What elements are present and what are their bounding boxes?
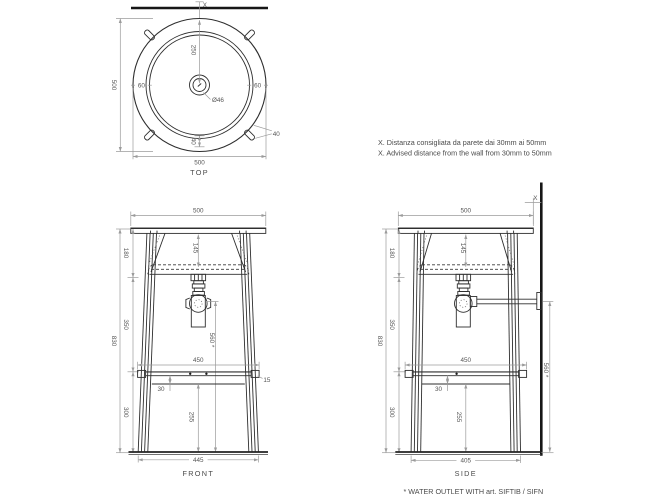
- front-seg-300-dim: 300: [122, 407, 129, 418]
- front-seg-180-dim: 180: [122, 248, 129, 259]
- pipe-nut: [470, 297, 477, 307]
- side-base-width-dim: 405: [461, 458, 472, 465]
- drain-center-tick: [198, 84, 201, 87]
- trap-ball-joint: [190, 295, 208, 313]
- top-center-offset-dim: 250: [190, 45, 197, 56]
- front-base-width-dim: 445: [193, 457, 204, 464]
- front-view: 500 145: [110, 207, 271, 478]
- front-total-height-dim: 830: [110, 336, 117, 347]
- top-width-dim: 500: [194, 159, 205, 166]
- side-view: 500 X 145: [376, 183, 554, 479]
- side-seg-350-dim: 350: [388, 319, 395, 330]
- water-outlet-footnote: * WATER OUTLET WITH art. SIFTIB / SIFN: [404, 487, 544, 496]
- top-view: X 500 250 60: [110, 2, 280, 177]
- top-lug-dim: 40: [273, 131, 281, 138]
- front-overhang-dim: 15: [263, 377, 271, 384]
- front-clearance-dim: 255: [188, 412, 195, 423]
- side-seg-180-dim: 180: [388, 248, 395, 259]
- front-outlet-height-dim: 560 *: [208, 333, 215, 348]
- front-siphon: [186, 274, 211, 327]
- side-total-height-dim: 830: [376, 336, 383, 347]
- washbasin-console-drawing: X 500 250 60: [0, 0, 667, 500]
- front-shelf: [138, 370, 260, 384]
- front-seg-350-dim: 350: [122, 319, 129, 330]
- side-basin-depth-dim: 145: [459, 243, 466, 254]
- side-left-dimensions: 180 350 300 830: [376, 229, 406, 453]
- technical-drawing-sheet: X 500 250 60: [0, 0, 667, 500]
- side-shelf: [405, 370, 526, 384]
- side-view-label: SIDE: [455, 469, 477, 478]
- top-rim-left-dim: 60: [138, 83, 146, 90]
- front-basin-depth-dim: 145: [192, 243, 199, 254]
- top-depth-dim: 500: [110, 80, 117, 91]
- side-trap-ball-joint: [455, 295, 473, 313]
- side-wall-distance-x: X: [533, 195, 538, 202]
- side-left-gusset: [420, 233, 432, 272]
- note-italian: X. Distanza consigliata da parete dai 30…: [378, 138, 546, 147]
- side-siphon: [455, 274, 542, 327]
- top-view-label: TOP: [190, 168, 209, 177]
- front-width-dim: 500: [193, 207, 204, 214]
- wall-distance-notes: X. Distanza consigliata da parete dai 30…: [378, 138, 552, 158]
- front-rail-height-dim: 30: [157, 386, 165, 393]
- side-outlet-height-dim: 560 *: [542, 363, 549, 378]
- side-rail-height-dim: 30: [435, 386, 443, 393]
- side-clearance-dim: 255: [455, 412, 462, 423]
- top-drain-diameter: Ø46: [212, 97, 224, 104]
- top-rim-right-dim: 60: [254, 83, 262, 90]
- side-seg-300-dim: 300: [388, 407, 395, 418]
- side-right-gusset: [500, 233, 512, 272]
- side-shelf-width-dim: 450: [461, 357, 472, 364]
- shelf-screw-right: [205, 373, 207, 375]
- top-rim-bottom-dim: 40: [189, 138, 196, 146]
- shelf-screw-left: [189, 373, 191, 375]
- side-shelf-screw: [455, 373, 457, 375]
- note-english: X. Advised distance from the wall from 3…: [378, 148, 552, 157]
- front-view-label: FRONT: [182, 469, 214, 478]
- front-shelf-width-dim: 450: [193, 357, 204, 364]
- front-left-dimensions: 180 350 300 830: [110, 229, 139, 453]
- side-width-dim: 500: [461, 207, 472, 214]
